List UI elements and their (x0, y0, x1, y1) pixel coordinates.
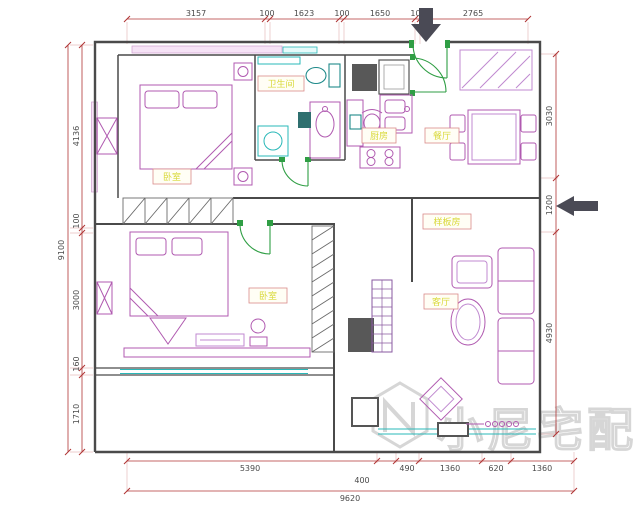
sink-bowl-1 (385, 100, 405, 113)
doors (237, 40, 450, 254)
dresser-mirror (150, 318, 186, 344)
bed1-pillow-left (145, 91, 179, 108)
side-arrow-left-icon (556, 196, 598, 216)
furniture-dining (450, 50, 536, 164)
dim-left-100: 100 (72, 213, 81, 228)
window-bedroom2 (120, 370, 308, 374)
dim-left-4136: 4136 (72, 126, 81, 146)
fixtures-bathroom (258, 57, 340, 158)
furniture-living (420, 248, 534, 420)
label-bedroom1: 卧室 (163, 171, 181, 183)
chair-4 (521, 143, 536, 160)
label-kitchen: 厨房 (370, 130, 388, 142)
wardrobe2 (312, 226, 334, 352)
bath-shelf (258, 57, 300, 64)
sideboard (460, 50, 532, 90)
stove (360, 147, 400, 168)
outer-wall (95, 42, 540, 452)
watermark-logo-n-icon (385, 402, 413, 432)
window-top-cyan (283, 47, 317, 53)
armchair-cushion (457, 261, 487, 283)
dim-top-1623: 1623 (294, 9, 314, 18)
dim-right-3030: 3030 (545, 106, 554, 126)
dim-right-1200: 1200 (545, 195, 554, 215)
dim-bottom-400: 400 (354, 476, 369, 485)
vanity-counter (310, 102, 340, 158)
watermark: 小尼宅配 (373, 383, 637, 457)
dining-table (468, 110, 520, 164)
burner-4 (385, 158, 393, 166)
desk-monitor (350, 115, 361, 129)
dim-left-1710: 1710 (72, 404, 81, 424)
bed1-pillow-right (183, 91, 217, 108)
dim-top-2765: 2765 (463, 9, 483, 18)
furniture-bedroom1 (97, 63, 252, 224)
dim-top-3157: 3157 (186, 9, 206, 18)
monitor-glyph (298, 112, 311, 128)
cooktop-inner (384, 65, 404, 89)
shoe-cabinet (372, 280, 392, 352)
bed1-blanket-folds (196, 133, 232, 169)
watermark-logo-icon (373, 383, 427, 447)
dim-left-total: 9100 (57, 240, 66, 260)
bed1 (140, 85, 232, 169)
dim-left-3000: 3000 (72, 290, 81, 310)
arrows (411, 8, 598, 216)
toilet-tank (329, 64, 340, 87)
dim-left-160: 160 (72, 356, 81, 371)
walls (95, 42, 540, 452)
wardrobe1 (123, 198, 233, 224)
dim-bottom-1360a: 1360 (440, 464, 460, 473)
sideboard-hatch (462, 52, 530, 88)
dim-bottom-1360b: 1360 (532, 464, 552, 473)
windows (92, 46, 537, 434)
label-bathroom: 卫生间 (267, 78, 294, 90)
bed2-pillow-left (136, 238, 166, 255)
dim-top-100b: 100 (334, 9, 349, 18)
label-bedroom2: 卧室 (259, 290, 277, 302)
furniture-bedroom2 (97, 226, 334, 357)
dim-right-4930: 4930 (545, 323, 554, 343)
toilet-bowl (306, 68, 326, 84)
dim-bottom-total: 9620 (340, 494, 360, 503)
lamp2 (238, 172, 248, 182)
furniture-kitchen (352, 60, 412, 168)
dim-top-100a: 100 (259, 9, 274, 18)
dimension-top: 3157 100 1623 100 1650 100 2765 (124, 9, 531, 44)
burner-3 (367, 158, 375, 166)
dim-bottom-620: 620 (488, 464, 503, 473)
bed2-blanket-folds (130, 288, 158, 316)
burner-2 (385, 150, 393, 158)
dim-bottom-5390: 5390 (240, 464, 260, 473)
stool (251, 319, 265, 333)
dining-table-inner (472, 114, 516, 160)
ac-unit-cross (97, 118, 117, 154)
burner-1 (367, 150, 375, 158)
radiator-cross (97, 282, 112, 314)
wall-protrusion (352, 398, 378, 426)
nightstand2 (234, 168, 252, 185)
coffee-table-inner (456, 304, 480, 340)
dim-top-1650: 1650 (370, 9, 390, 18)
chair-3 (521, 115, 536, 132)
tv-cabinet (124, 348, 310, 357)
structural-column (348, 318, 374, 352)
dimension-right: 3030 1200 4930 (540, 51, 559, 437)
label-dining: 餐厅 (433, 130, 451, 142)
window-top-band (132, 46, 282, 53)
lamp1 (238, 67, 248, 77)
wall-pillar-bottom (438, 423, 468, 436)
desk-chair-back (362, 110, 382, 114)
dim-bottom-490: 490 (399, 464, 414, 473)
vanity-basin (316, 111, 334, 137)
fridge (352, 64, 377, 91)
washing-machine (258, 126, 288, 156)
dimension-left: 9100 4136 100 3000 160 1710 (57, 42, 93, 455)
floor-plan-canvas: 小尼宅配 3157 100 1623 100 1650 100 2765 910… (0, 0, 640, 512)
label-model-room: 样板房 (433, 216, 460, 228)
washing-machine-drum (264, 132, 282, 150)
chair-2 (450, 143, 465, 160)
dimension-bottom: 5390 490 1360 620 1360 400 9620 (124, 452, 577, 503)
bed2-pillow-right (172, 238, 202, 255)
stool-table (250, 337, 267, 346)
nightstand1 (234, 63, 252, 80)
label-living: 客厅 (432, 296, 450, 308)
